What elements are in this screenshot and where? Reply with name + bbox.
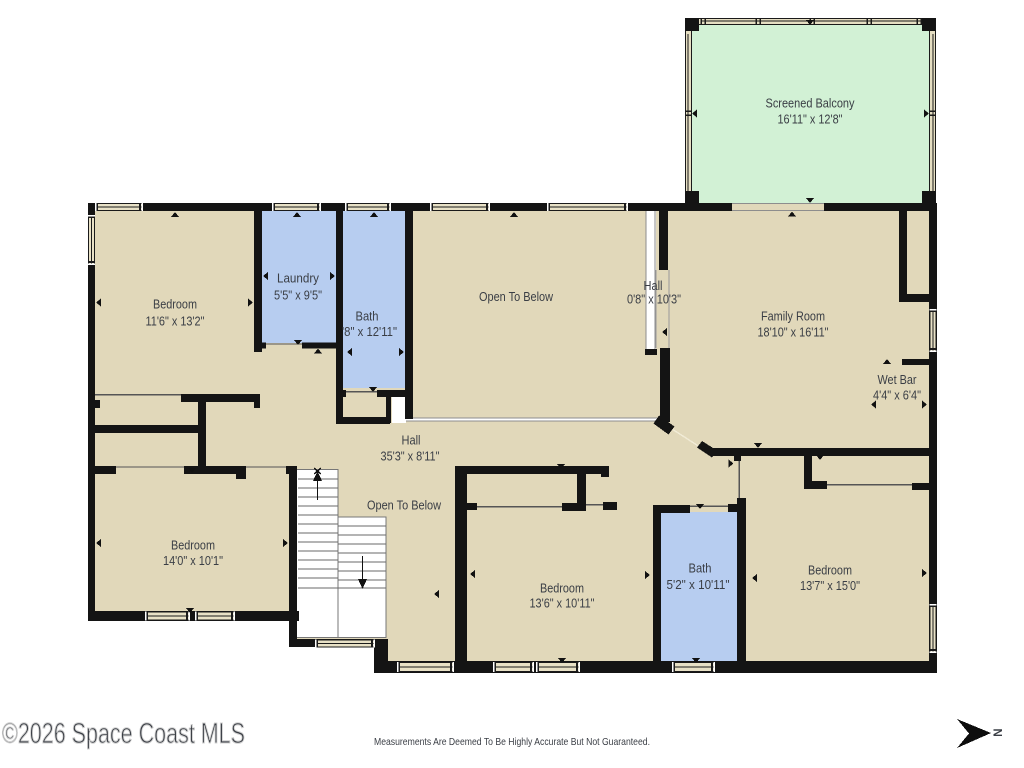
svg-text:Bedroom: Bedroom	[808, 563, 852, 578]
svg-text:Bath: Bath	[356, 309, 379, 324]
svg-text:35'3" x 8'11": 35'3" x 8'11"	[381, 449, 440, 464]
svg-text:Bedroom: Bedroom	[171, 538, 215, 553]
svg-text:5'2" x 10'11": 5'2" x 10'11"	[667, 577, 730, 592]
svg-text:Family Room: Family Room	[761, 309, 825, 324]
svg-text:16'11" x 12'8": 16'11" x 12'8"	[778, 112, 843, 127]
svg-text:18'10" x 16'11": 18'10" x 16'11"	[758, 325, 829, 340]
svg-text:Wet Bar: Wet Bar	[878, 372, 918, 387]
svg-text:13'7" x 15'0": 13'7" x 15'0"	[800, 578, 860, 593]
svg-text:0'8" x 10'3": 0'8" x 10'3"	[627, 292, 681, 307]
svg-text:11'6" x 13'2": 11'6" x 13'2"	[146, 314, 205, 329]
svg-text:Bedroom: Bedroom	[153, 297, 197, 312]
svg-text:14'0" x 10'1": 14'0" x 10'1"	[163, 553, 223, 568]
svg-text:Hall: Hall	[402, 433, 421, 448]
svg-text:Bedroom: Bedroom	[540, 581, 584, 596]
svg-text:Open To Below: Open To Below	[479, 289, 554, 304]
svg-text:©2026 Space Coast MLS: ©2026 Space Coast MLS	[2, 718, 245, 750]
svg-text:Screened Balcony: Screened Balcony	[766, 96, 855, 111]
svg-text:'8" x 12'11": '8" x 12'11"	[342, 324, 397, 339]
svg-text:N: N	[991, 729, 1003, 737]
svg-text:4'4" x 6'4": 4'4" x 6'4"	[873, 388, 921, 403]
svg-text:Laundry: Laundry	[277, 271, 319, 286]
svg-text:5'5" x 9'5": 5'5" x 9'5"	[274, 288, 322, 303]
svg-text:Open To Below: Open To Below	[367, 498, 442, 513]
svg-text:Measurements Are Deemed To Be: Measurements Are Deemed To Be Highly Acc…	[374, 736, 650, 748]
svg-text:Bath: Bath	[689, 561, 712, 576]
svg-text:13'6" x 10'11": 13'6" x 10'11"	[530, 596, 595, 611]
